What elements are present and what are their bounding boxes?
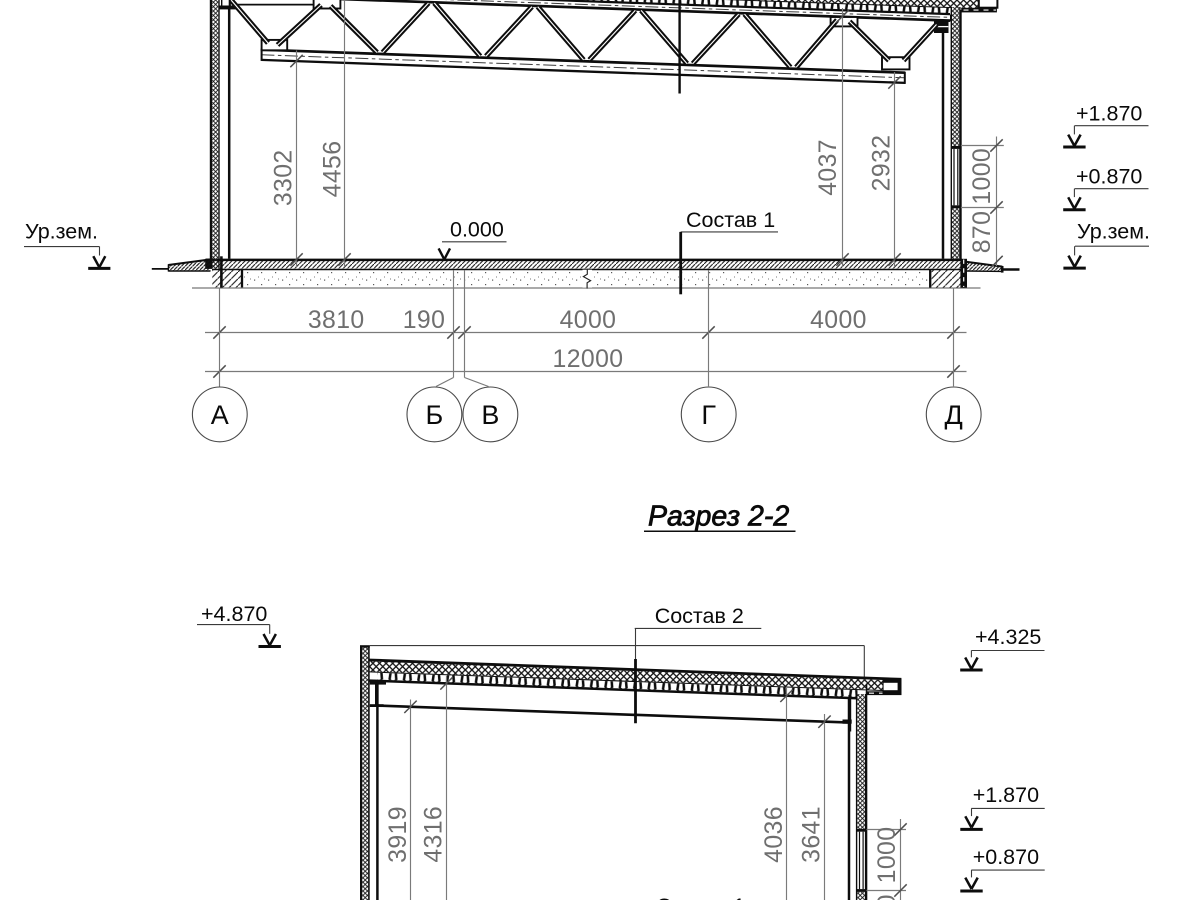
svg-text:12000: 12000 <box>553 346 624 373</box>
svg-text:В: В <box>481 400 499 430</box>
svg-text:Б: Б <box>426 400 444 430</box>
svg-text:870: 870 <box>969 211 996 254</box>
svg-text:+1.870: +1.870 <box>973 783 1039 807</box>
svg-text:3302: 3302 <box>270 149 297 206</box>
svg-text:3641: 3641 <box>798 806 825 863</box>
svg-text:А: А <box>211 400 229 430</box>
svg-text:+4.870: +4.870 <box>201 602 267 626</box>
svg-text:2932: 2932 <box>869 135 896 192</box>
svg-text:+0.870: +0.870 <box>1076 164 1142 188</box>
svg-text:0.000: 0.000 <box>450 218 504 242</box>
svg-text:Ур.зем.: Ур.зем. <box>1077 220 1150 244</box>
svg-text:Состав 1: Состав 1 <box>656 894 745 900</box>
svg-text:4316: 4316 <box>420 806 447 863</box>
svg-text:4037: 4037 <box>815 139 842 196</box>
svg-text:Разрез 2-2: Разрез 2-2 <box>648 500 789 532</box>
svg-text:Состав 1: Состав 1 <box>686 208 775 232</box>
svg-text:+0.870: +0.870 <box>973 845 1039 869</box>
svg-text:1000: 1000 <box>969 148 996 205</box>
svg-text:Ур.зем.: Ур.зем. <box>25 220 98 244</box>
svg-text:3919: 3919 <box>385 806 412 863</box>
svg-text:Состав 2: Состав 2 <box>655 604 744 628</box>
svg-text:Г: Г <box>701 400 716 430</box>
svg-text:3810: 3810 <box>308 307 365 334</box>
svg-text:190: 190 <box>403 307 446 334</box>
svg-text:+4.325: +4.325 <box>975 625 1041 649</box>
svg-text:Д: Д <box>945 400 963 430</box>
svg-text:4456: 4456 <box>320 141 347 198</box>
svg-text:4036: 4036 <box>761 806 788 863</box>
svg-text:+1.870: +1.870 <box>1076 101 1142 125</box>
svg-text:4000: 4000 <box>810 307 867 334</box>
svg-text:1000: 1000 <box>874 827 901 884</box>
svg-text:4000: 4000 <box>560 307 617 334</box>
svg-text:870: 870 <box>874 894 901 900</box>
